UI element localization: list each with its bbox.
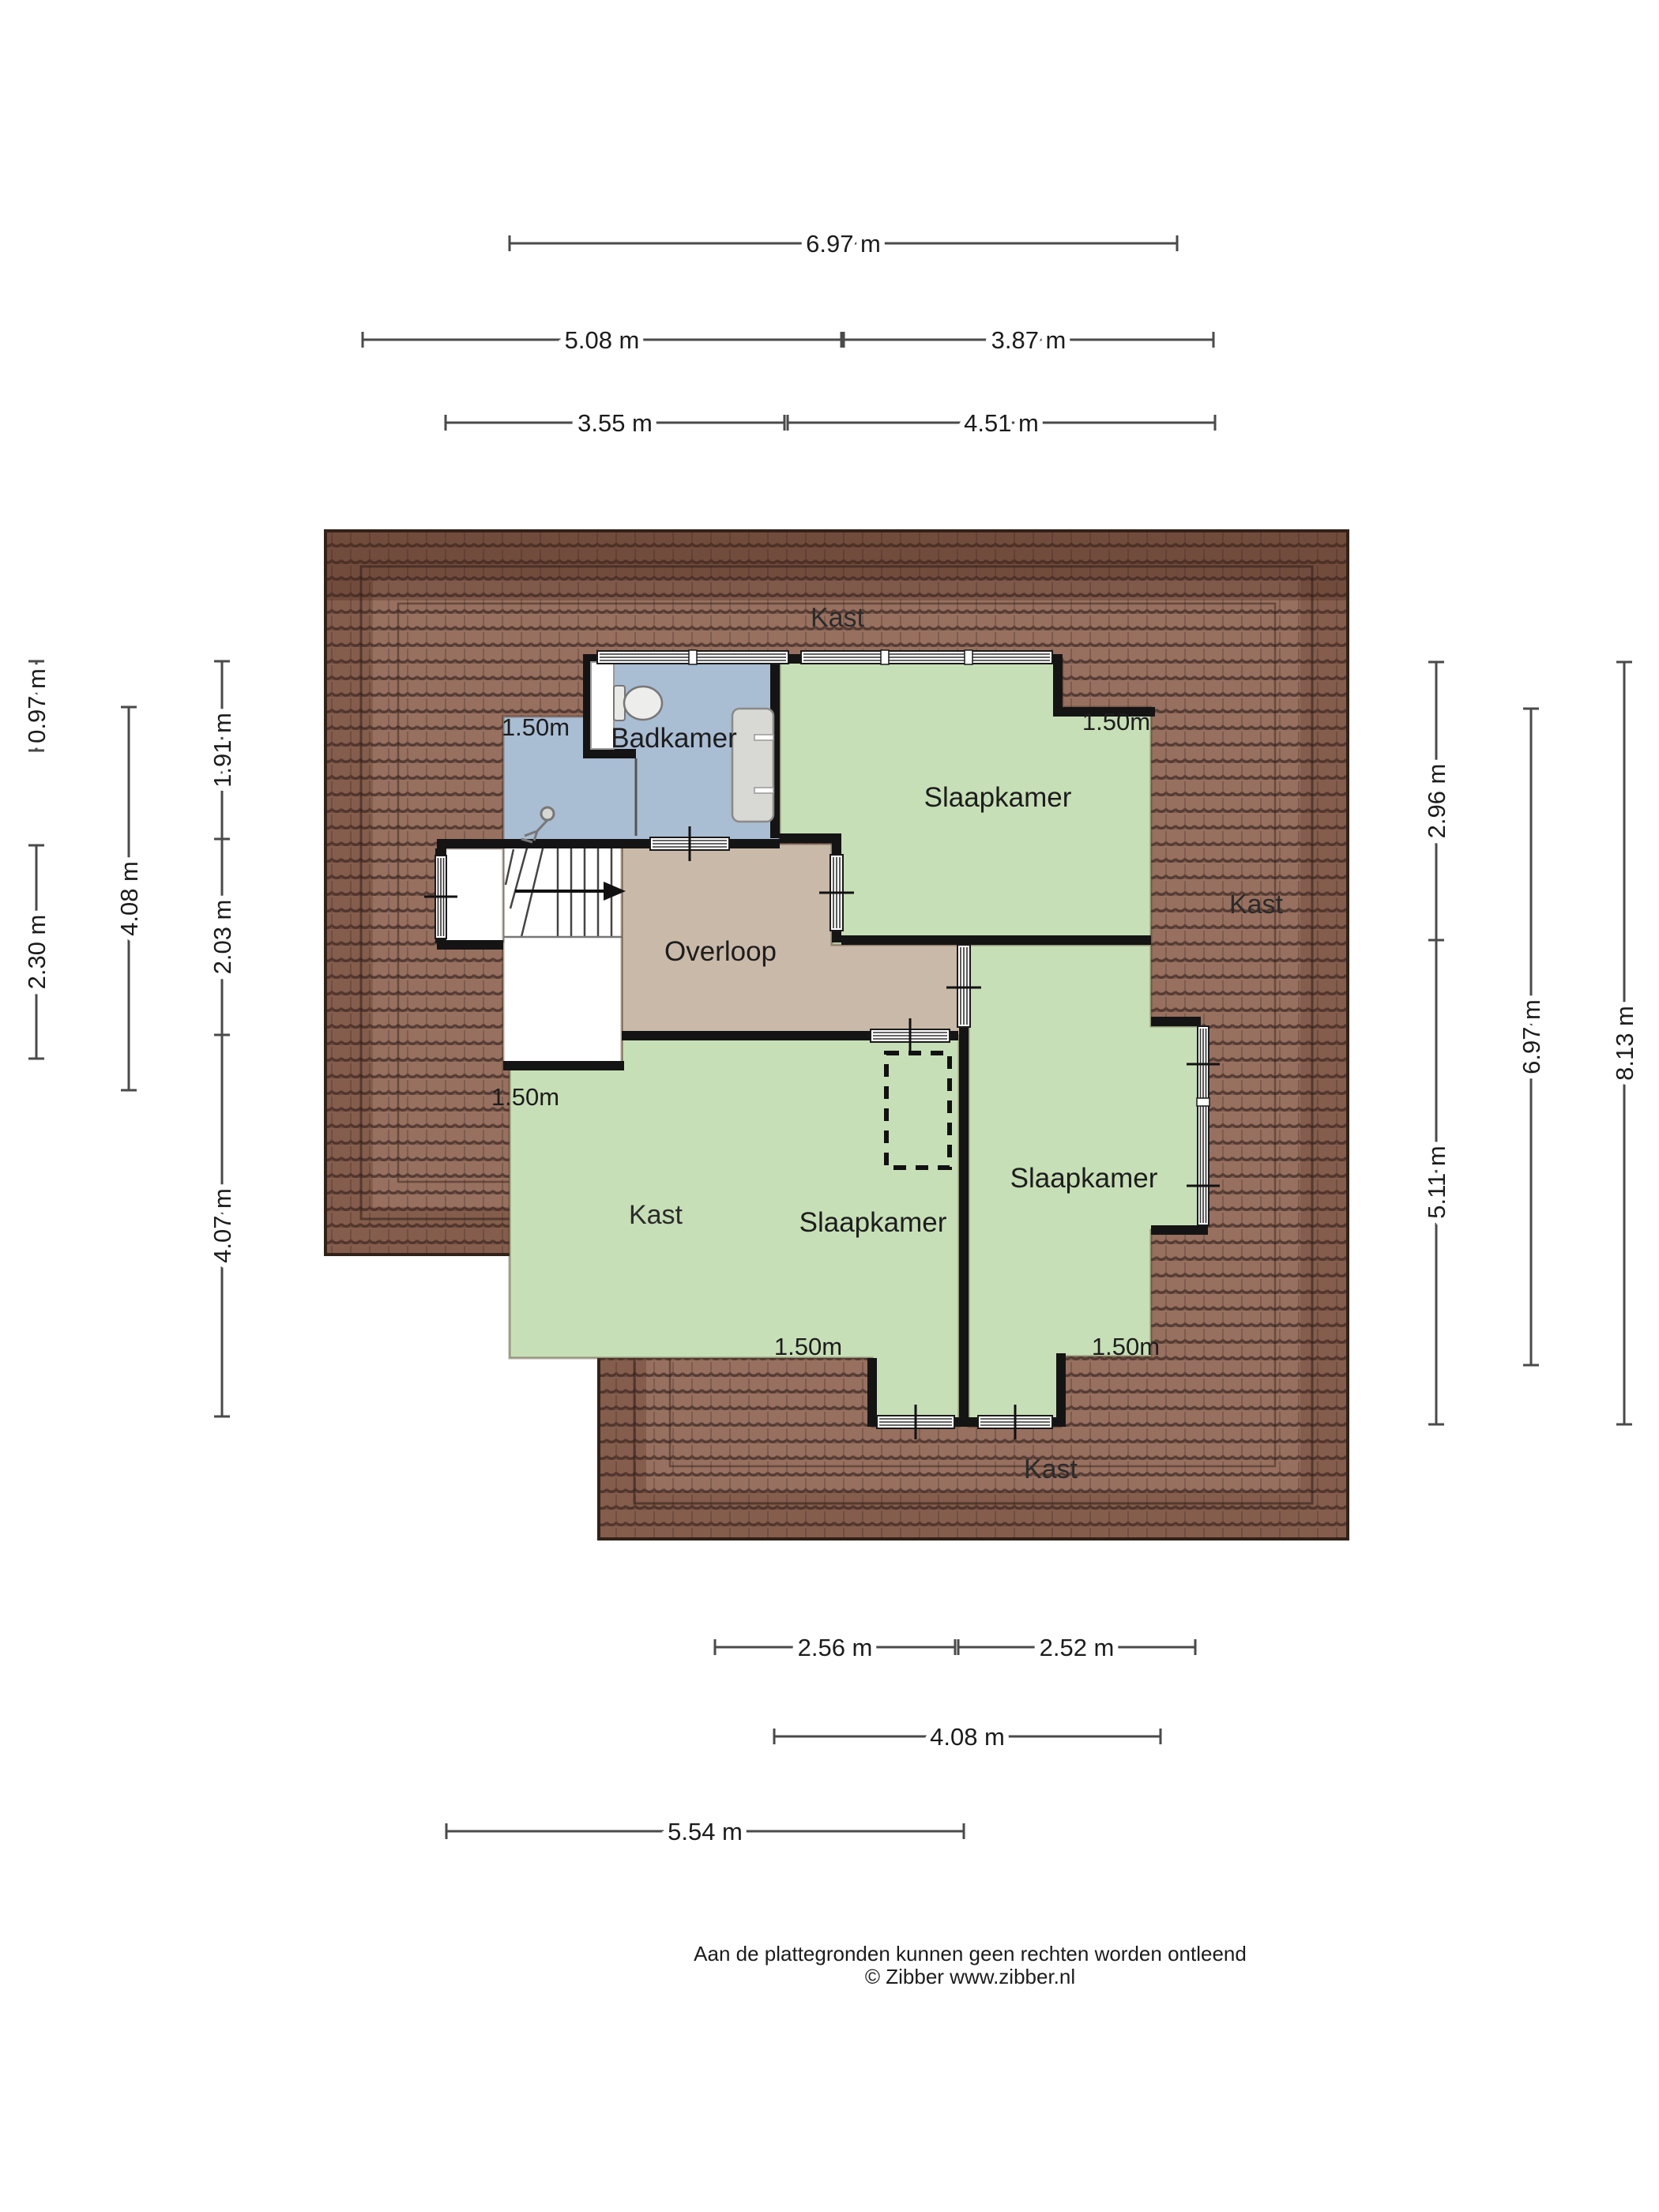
dimension-vertical: 6.97 m [1518, 709, 1545, 1365]
dimension-horizontal: 3.55 m [446, 409, 784, 437]
floorplan-drawing: 6.97 m5.08 m3.87 m3.55 m4.51 m2.56 m2.52… [0, 0, 1659, 2212]
room-label-slaapkamer-rechtsonder: Slaapkamer [1010, 1163, 1158, 1194]
dimension-horizontal: 4.08 m [774, 1723, 1161, 1751]
stairwell-floor [503, 844, 622, 1063]
ceiling-height-marker: 1.50m [491, 1083, 559, 1111]
dimension-horizontal: 2.56 m [715, 1634, 955, 1661]
closet-label: Kast [629, 1200, 683, 1230]
dimension-vertical: 2.30 m [23, 845, 51, 1059]
dimension-vertical: 4.07 m [209, 1035, 236, 1416]
dimension-value: 4.08 m [930, 1723, 1005, 1751]
room-label-badkamer: Badkamer [611, 723, 737, 754]
room-label-slaapkamer-linksonder: Slaapkamer [799, 1207, 947, 1238]
dimension-vertical: 2.96 m [1423, 662, 1450, 940]
dimension-value: 6.97 m [1518, 999, 1545, 1074]
dimension-vertical: 2.03 m [209, 839, 236, 1035]
dimension-vertical: 0.97 m [23, 661, 51, 750]
ceiling-height-marker: 1.50m [502, 713, 570, 741]
window-symbol [597, 650, 788, 664]
dimension-horizontal: 2.52 m [958, 1634, 1195, 1661]
dimension-value: 2.96 m [1423, 764, 1450, 839]
dimension-vertical: 8.13 m [1611, 662, 1638, 1424]
window-symbol [801, 650, 1052, 664]
footer-disclaimer: Aan de plattegronden kunnen geen rechten… [694, 1942, 1247, 1966]
dimension-value: 0.97 m [23, 668, 51, 743]
dimension-value: 5.54 m [668, 1818, 743, 1845]
dimension-value: 2.56 m [798, 1634, 873, 1661]
dimension-value: 4.07 m [209, 1188, 236, 1263]
room-label-slaapkamer-rechtsboven: Slaapkamer [924, 782, 1072, 813]
dimension-value: 2.03 m [209, 900, 236, 975]
dimension-vertical: 1.91 m [209, 661, 236, 839]
dimension-value: 3.55 m [577, 409, 653, 437]
ceiling-height-marker: 1.50m [774, 1333, 842, 1360]
dimension-value: 5.08 m [565, 326, 640, 354]
ceiling-height-marker: 1.50m [1082, 708, 1150, 735]
washbasin-icon [732, 709, 773, 822]
closet-label: Kast [1229, 890, 1284, 920]
ceiling-height-marker: 1.50m [1092, 1333, 1160, 1360]
dimension-value: 2.30 m [23, 915, 51, 990]
dimension-value: 4.08 m [115, 861, 143, 936]
dimension-horizontal: 5.08 m [363, 326, 841, 354]
dimension-value: 5.11 m [1423, 1145, 1450, 1218]
dimension-vertical: 5.11 m [1423, 940, 1450, 1424]
dimension-vertical: 4.08 m [115, 707, 143, 1090]
dimension-value: 6.97 m [806, 230, 881, 258]
closet-label: Kast [1024, 1454, 1078, 1484]
room-label-overloop: Overloop [664, 936, 777, 967]
dimension-value: 2.52 m [1040, 1634, 1115, 1661]
toilet-icon [614, 686, 662, 720]
closet-label: Kast [811, 603, 865, 633]
dimension-horizontal: 6.97 m [510, 230, 1177, 258]
floor-areas [445, 659, 1199, 1427]
stair-niche-floor [445, 848, 503, 942]
floorplan-page: 6.97 m5.08 m3.87 m3.55 m4.51 m2.56 m2.52… [0, 0, 1659, 2212]
dimension-value: 8.13 m [1611, 1006, 1638, 1081]
dimension-value: 3.87 m [991, 326, 1066, 354]
dimension-horizontal: 5.54 m [446, 1818, 964, 1845]
dimension-value: 4.51 m [964, 409, 1039, 437]
dimension-horizontal: 3.87 m [844, 326, 1213, 354]
footer-copyright: © Zibber www.zibber.nl [865, 1965, 1075, 1989]
dimension-value: 1.91 m [209, 713, 236, 788]
dimension-horizontal: 4.51 m [788, 409, 1215, 437]
